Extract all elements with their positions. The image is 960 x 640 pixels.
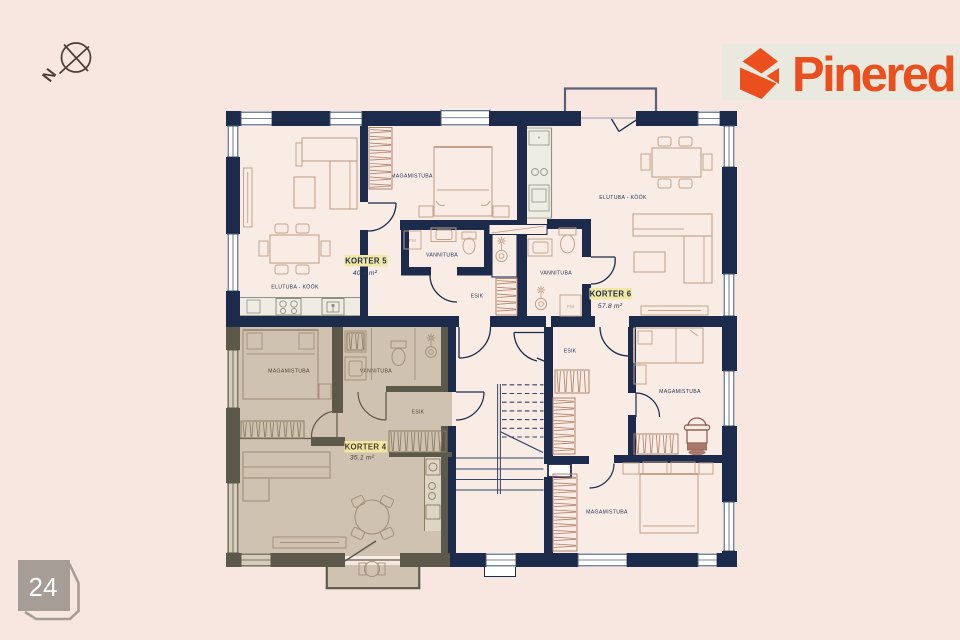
svg-text:57.8 m²: 57.8 m² xyxy=(598,303,623,310)
svg-text:MAGAMISTUBA: MAGAMISTUBA xyxy=(586,510,628,516)
svg-text:KORTER 5: KORTER 5 xyxy=(345,257,387,266)
svg-text:MAGAMISTUBA: MAGAMISTUBA xyxy=(659,389,701,395)
svg-text:PM: PM xyxy=(409,238,417,243)
svg-text:ESIK: ESIK xyxy=(564,349,577,355)
svg-text:VANNITUBA: VANNITUBA xyxy=(360,369,392,375)
svg-text:VANNITUBA: VANNITUBA xyxy=(426,253,458,259)
svg-text:MAGAMISTUBA: MAGAMISTUBA xyxy=(268,369,310,375)
svg-text:ESIK: ESIK xyxy=(471,294,484,300)
svg-text:KORTER 6: KORTER 6 xyxy=(590,290,632,299)
svg-text:ELUTUBA - KÖÖK: ELUTUBA - KÖÖK xyxy=(599,194,647,201)
svg-text:KORTER 4: KORTER 4 xyxy=(345,443,387,452)
svg-text:40.4 m²: 40.4 m² xyxy=(353,270,378,277)
svg-text:PM: PM xyxy=(567,304,575,309)
svg-text:Pinered: Pinered xyxy=(792,48,955,102)
svg-text:MAGAMISTUBA: MAGAMISTUBA xyxy=(391,174,433,180)
svg-text:35.1 m²: 35.1 m² xyxy=(350,455,375,462)
svg-text:ELUTUBA - KÖÖK: ELUTUBA - KÖÖK xyxy=(271,284,319,291)
svg-text:*: * xyxy=(538,136,541,143)
svg-text:ESIK: ESIK xyxy=(412,410,425,416)
svg-text:VANNITUBA: VANNITUBA xyxy=(540,271,572,277)
svg-text:24: 24 xyxy=(29,572,58,602)
